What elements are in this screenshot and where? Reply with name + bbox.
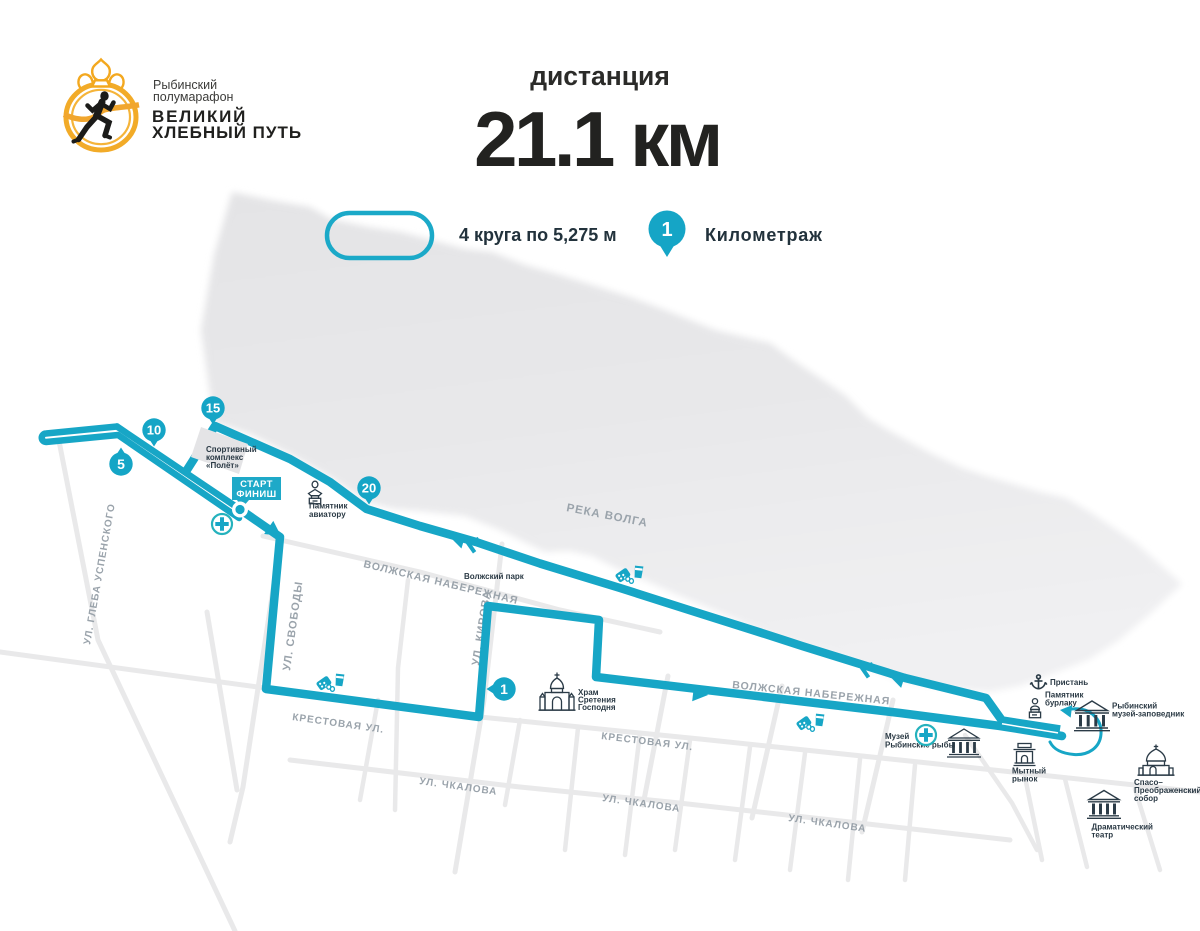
svg-text:Волжский парк: Волжский парк bbox=[464, 572, 525, 581]
svg-text:4 круга по 5,275 м: 4 круга по 5,275 м bbox=[459, 225, 617, 245]
svg-text:музей-заповедник: музей-заповедник bbox=[1112, 710, 1185, 719]
svg-text:ФИНИШ: ФИНИШ bbox=[236, 489, 276, 500]
svg-text:1: 1 bbox=[500, 681, 508, 697]
svg-text:собор: собор bbox=[1134, 794, 1158, 803]
svg-text:Километраж: Километраж bbox=[705, 225, 823, 245]
svg-text:театр: театр bbox=[1092, 831, 1114, 840]
svg-text:15: 15 bbox=[206, 401, 220, 416]
svg-text:бурлаку: бурлаку bbox=[1045, 699, 1077, 708]
svg-text:Господня: Господня bbox=[578, 703, 616, 712]
svg-text:ХЛЕБНЫЙ ПУТЬ: ХЛЕБНЫЙ ПУТЬ bbox=[152, 123, 302, 142]
svg-text:авиатору: авиатору bbox=[309, 510, 346, 519]
svg-text:21.1 км: 21.1 км bbox=[474, 95, 720, 183]
svg-text:полумарафон: полумарафон bbox=[153, 90, 234, 104]
svg-text:УЛ. ЧКАЛОВА: УЛ. ЧКАЛОВА bbox=[602, 793, 681, 815]
svg-text:20: 20 bbox=[362, 481, 376, 496]
svg-text:рынок: рынок bbox=[1012, 775, 1038, 784]
svg-text:10: 10 bbox=[147, 423, 161, 438]
svg-text:1: 1 bbox=[661, 219, 672, 241]
svg-text:«Полёт»: «Полёт» bbox=[206, 461, 239, 470]
svg-text:УЛ. СВОБОДЫ: УЛ. СВОБОДЫ bbox=[281, 580, 305, 671]
svg-text:дистанция: дистанция bbox=[530, 61, 670, 91]
svg-text:КРЕСТОВАЯ УЛ.: КРЕСТОВАЯ УЛ. bbox=[292, 712, 385, 736]
svg-text:5: 5 bbox=[117, 456, 125, 472]
svg-text:Пристань: Пристань bbox=[1050, 678, 1088, 687]
